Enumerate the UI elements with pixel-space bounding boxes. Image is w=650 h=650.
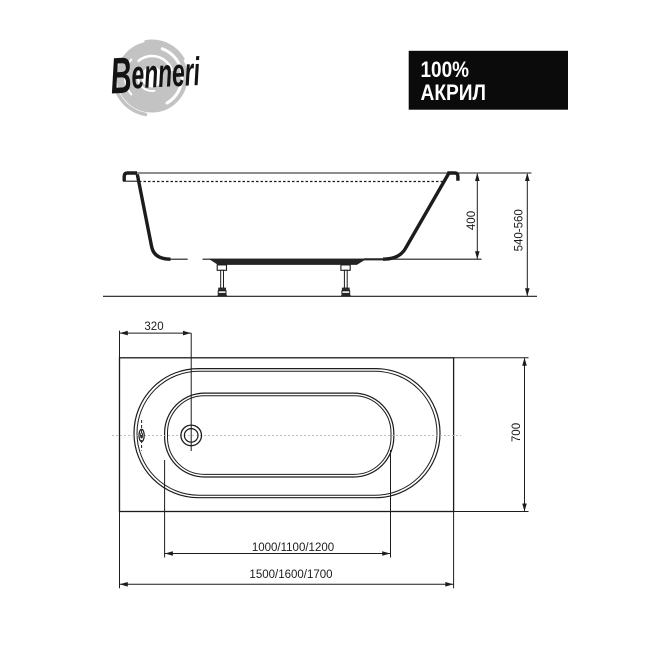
svg-text:100%: 100% xyxy=(421,57,470,82)
svg-text:320: 320 xyxy=(144,321,163,333)
svg-text:enneri: enneri xyxy=(130,49,201,97)
svg-text:1000/1100/1200: 1000/1100/1200 xyxy=(252,542,334,554)
svg-text:АКРИЛ: АКРИЛ xyxy=(421,80,487,105)
svg-text:540-560: 540-560 xyxy=(513,209,525,251)
svg-text:1500/1600/1700: 1500/1600/1700 xyxy=(249,569,332,581)
svg-text:700: 700 xyxy=(511,423,523,442)
svg-text:400: 400 xyxy=(466,211,478,230)
svg-text:B: B xyxy=(109,46,133,105)
